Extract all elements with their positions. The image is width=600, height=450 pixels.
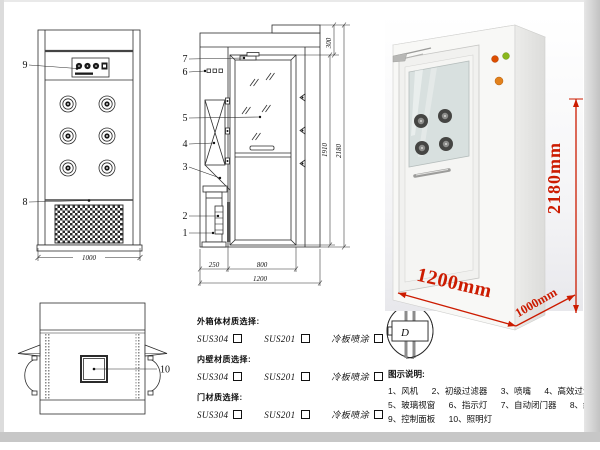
dim-2180: 2180 [335,144,343,159]
photo-dim-height: 2180mm [544,142,564,214]
material-option-checkbox[interactable] [374,372,383,381]
material-option-label: 冷板喷涂 [331,370,369,383]
photo-dimensions: 2180mm 1200mm 1000mm [398,99,583,327]
indicator-lights-row [207,69,223,73]
front-view-drawing: 9 8 1000 [15,18,170,270]
side-view-drawing: 7 6 5 4 3 2 1 300 1910 [172,14,362,304]
door-option-d: D [388,300,432,362]
page-frame-bottom [0,432,600,442]
material-option: SUS201 [264,372,309,382]
photo-door-handle [415,170,449,177]
dim-300: 300 [325,37,333,49]
part-number-7: 7 [183,54,188,65]
material-option-checkbox[interactable] [233,334,242,343]
material-option: 冷板喷涂 [331,408,383,421]
legend-item: 6、指示灯 [449,400,488,410]
part-number-6: 6 [183,67,188,78]
material-section-door: 门材质选择: SUS304 SUS201 冷板喷涂 [197,392,383,421]
dim-1000: 1000 [82,254,97,262]
material-option: 冷板喷涂 [331,370,383,383]
photo-background [385,15,583,311]
material-option-label: SUS201 [264,372,295,382]
material-option-checkbox[interactable] [374,334,383,343]
dim-1910: 1910 [321,143,329,158]
door-with-glass [230,53,296,246]
legend-item: 7、自动闭门器 [501,400,557,410]
legend-row: 1、风机 2、初级过滤器 3、喷嘴 4、高效过滤器 [388,384,596,398]
material-option-label: 冷板喷涂 [331,408,369,421]
page-frame-top [0,0,600,2]
part-number-8: 8 [23,197,28,208]
photo-dim-width: 1200mm [415,264,494,303]
material-section-title: 内壁材质选择: [197,354,383,365]
material-options-row: SUS304 SUS201 冷板喷涂 [197,370,383,383]
material-options-row: SUS304 SUS201 冷板喷涂 [197,408,383,421]
material-option-label: SUS304 [197,372,228,382]
material-options-row: SUS304 SUS201 冷板喷涂 [197,332,383,345]
material-option-label: SUS304 [197,334,228,344]
photo-door [399,45,479,292]
material-option: SUS201 [264,334,309,344]
part-number-10: 10 [160,365,170,376]
material-option-label: SUS304 [197,410,228,420]
material-option: SUS201 [264,410,309,420]
material-option-checkbox[interactable] [233,372,242,381]
part-number-2: 2 [183,211,188,222]
legend-item: 1、风机 [388,386,418,396]
dim-1200: 1200 [253,275,268,283]
dim-250: 250 [209,261,220,269]
material-option-label: SUS201 [264,410,295,420]
return-air-grille [55,205,123,243]
legend-item: 10、照明灯 [449,414,492,424]
side-width-dimensions: 250 800 1200 [198,247,322,286]
material-option-checkbox[interactable] [301,334,310,343]
photo-indicator-lights [492,53,510,85]
material-option-checkbox[interactable] [374,410,383,419]
legend-item: 9、控制面板 [388,414,435,424]
material-option-label: 冷板喷涂 [331,332,369,345]
photo-nozzles [414,109,453,155]
material-section-inner-wall: 内壁材质选择: SUS304 SUS201 冷板喷涂 [197,354,383,383]
material-option: SUS304 [197,372,242,382]
top-view-drawing: 10 [15,295,190,435]
material-selection-block: 外箱体材质选择: SUS304 SUS201 冷板喷涂 内壁材质选择: [197,316,383,430]
legend-item: 5、玻璃视窗 [388,400,435,410]
legend-item: 2、初级过滤器 [432,386,488,396]
part-number-4: 4 [183,139,188,150]
part-number-9: 9 [23,60,28,71]
material-section-outer-box: 外箱体材质选择: SUS304 SUS201 冷板喷涂 [197,316,383,345]
door-option-label: D [400,327,409,339]
air-shower-cabinet [393,25,545,330]
part-number-1: 1 [183,228,188,239]
page-frame-left [0,0,4,442]
part-number-5: 5 [183,113,188,124]
material-option-checkbox[interactable] [301,410,310,419]
legend-title: 图示说明: [388,368,596,380]
door-swing-options: A B C D [388,299,576,363]
material-option: 冷板喷涂 [331,332,383,345]
page-frame-right [584,0,600,442]
parts-legend: 图示说明: 1、风机 2、初级过滤器 3、喷嘴 4、高效过滤器 5、玻璃视窗 6… [388,368,596,426]
material-option: SUS304 [197,410,242,420]
dim-800: 800 [257,261,268,269]
material-option-checkbox[interactable] [233,410,242,419]
legend-row: 9、控制面板 10、照明灯 [388,412,596,426]
part-number-3: 3 [183,162,188,173]
legend-item: 3、喷嘴 [501,386,531,396]
air-shower-spec-sheet: 9 8 1000 [0,0,600,450]
material-option-checkbox[interactable] [301,372,310,381]
material-option-label: SUS201 [264,334,295,344]
material-section-title: 门材质选择: [197,392,383,403]
photo-glass-window [409,61,469,167]
legend-row: 5、玻璃视窗 6、指示灯 7、自动闭门器 8、红外线感应器 [388,398,596,412]
material-option: SUS304 [197,334,242,344]
material-section-title: 外箱体材质选择: [197,316,383,327]
photo-door-closer [393,48,431,62]
